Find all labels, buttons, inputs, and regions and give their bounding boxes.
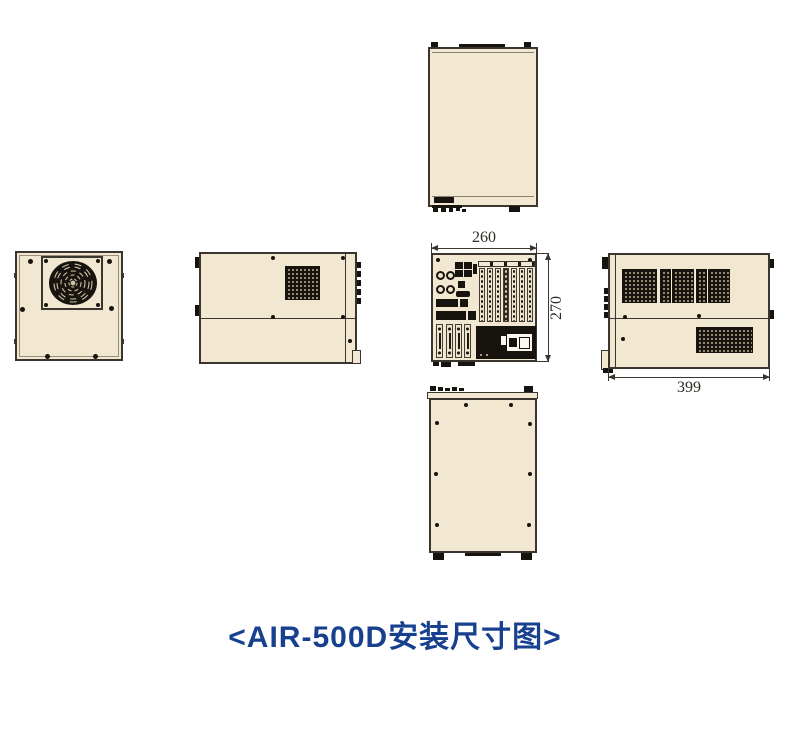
rear-bump xyxy=(357,280,361,286)
perforated-vent xyxy=(696,269,707,303)
fan-screw xyxy=(96,303,100,307)
edge-strip xyxy=(465,553,501,556)
bottom-panel xyxy=(429,398,537,553)
installation-dimension-diagram: 260 xyxy=(0,0,790,736)
screw-hole xyxy=(527,523,531,527)
screw-hole xyxy=(435,421,439,425)
slot-cover xyxy=(455,324,462,358)
flange-tick xyxy=(121,273,124,278)
rear-edge-line xyxy=(615,255,616,367)
expansion-slot-cover xyxy=(495,268,501,322)
dimension-arrow xyxy=(530,245,537,251)
screw-hole xyxy=(435,523,439,527)
dimension-depth-label: 399 xyxy=(659,380,719,398)
dsub-connector xyxy=(456,291,470,297)
left-side-view xyxy=(195,250,367,368)
expansion-slot-cover xyxy=(487,268,493,322)
panel-split-line xyxy=(610,318,768,319)
round-connector xyxy=(436,271,445,280)
rear-bump xyxy=(357,298,361,304)
io-port xyxy=(473,264,477,274)
usb-port-stack xyxy=(454,261,472,277)
screw-hole xyxy=(528,472,532,476)
connector-bump xyxy=(462,209,466,212)
dimension-width-label: 260 xyxy=(454,230,514,246)
expansion-slot-cover xyxy=(511,268,517,322)
screw-hole xyxy=(28,259,33,264)
chassis-foot xyxy=(521,553,532,560)
flange-tick xyxy=(14,339,17,344)
bottom-view xyxy=(425,383,545,565)
connector-bump xyxy=(449,208,453,212)
dimension-arrow xyxy=(763,374,770,380)
rear-bump xyxy=(357,271,361,277)
connector-bump xyxy=(441,208,446,212)
slot-cover xyxy=(436,324,443,358)
screw-hole xyxy=(341,315,345,319)
expansion-slot-cover xyxy=(527,268,533,322)
power-switch xyxy=(509,338,517,347)
connector-bump xyxy=(456,208,460,211)
slot-cover xyxy=(464,324,471,358)
screw-hole xyxy=(434,472,438,476)
left-side-panel xyxy=(199,252,357,364)
fan-mount-plate xyxy=(41,256,103,310)
chassis-foot xyxy=(441,362,451,367)
top-view xyxy=(425,42,545,217)
rear-bump xyxy=(770,310,774,319)
connector-bump xyxy=(433,208,438,212)
rear-bump xyxy=(357,289,361,295)
screw-hole xyxy=(93,354,98,359)
screw-hole xyxy=(271,256,275,260)
io-port xyxy=(460,299,468,307)
screw-hole xyxy=(109,306,114,311)
screw-hole xyxy=(348,339,352,343)
chassis-foot xyxy=(433,553,444,560)
right-side-panel xyxy=(608,253,770,369)
screw-hole xyxy=(107,259,112,264)
top-cover-panel xyxy=(428,47,538,207)
io-port xyxy=(458,281,465,288)
connector-bump xyxy=(445,388,450,391)
fan-side-view xyxy=(15,251,127,363)
card-cage-rail xyxy=(478,261,535,267)
rear-bump xyxy=(770,259,774,268)
io-port xyxy=(436,311,466,320)
chassis-foot xyxy=(352,350,361,364)
screw-hole xyxy=(20,307,25,312)
screw-hole xyxy=(271,315,275,319)
dimension-line xyxy=(608,377,770,378)
io-connector-cluster xyxy=(436,261,478,323)
slot-cover xyxy=(446,324,453,358)
expansion-slot-cover xyxy=(503,268,509,322)
screw-hole xyxy=(528,422,532,426)
chassis-foot xyxy=(458,362,475,366)
perforated-vent xyxy=(708,269,730,303)
panel-split-line xyxy=(201,318,355,319)
panel-seam-line xyxy=(432,52,534,53)
screw-hole xyxy=(697,314,701,318)
chassis-foot xyxy=(509,206,520,212)
connector-bump xyxy=(438,387,443,391)
perforated-vent xyxy=(285,266,320,300)
rear-bump xyxy=(357,262,361,268)
expansion-slot-cover xyxy=(479,268,485,322)
screw-hole xyxy=(464,403,468,407)
connector-bump xyxy=(459,388,464,391)
screw-hole xyxy=(341,256,345,260)
power-plug-opening xyxy=(519,337,530,349)
expansion-slot-cover xyxy=(519,268,525,322)
perforated-vent xyxy=(696,327,753,353)
connector-bump xyxy=(430,386,436,391)
power-inlet-socket xyxy=(506,333,533,352)
rear-view: 260 xyxy=(425,228,580,373)
dimension-line xyxy=(431,248,537,249)
psu-screw xyxy=(486,354,488,356)
chassis-foot xyxy=(433,362,439,366)
screw-hole xyxy=(621,337,625,341)
fan-screw xyxy=(44,303,48,307)
io-port xyxy=(468,311,476,320)
io-port xyxy=(436,299,458,307)
right-side-view: 399 xyxy=(598,250,788,400)
screw-hole xyxy=(509,403,513,407)
screw-hole xyxy=(623,315,627,319)
round-connector xyxy=(436,285,445,294)
psu-screw xyxy=(480,354,482,356)
fan-grille-icon xyxy=(47,260,99,306)
rear-edge-line xyxy=(345,254,346,362)
product-label xyxy=(434,197,454,203)
dimension-arrow xyxy=(545,253,551,260)
diagram-caption: <AIR-500D安装尺寸图> xyxy=(0,612,790,656)
dimension-arrow xyxy=(431,245,438,251)
dimension-arrow xyxy=(608,374,615,380)
flange-tick xyxy=(121,339,124,344)
dimension-height-label: 270 xyxy=(549,288,565,328)
round-connector xyxy=(446,285,455,294)
connector-bump xyxy=(452,387,457,391)
perforated-vent xyxy=(660,269,671,303)
perforated-vent xyxy=(672,269,694,303)
round-connector xyxy=(446,271,455,280)
screw-hole xyxy=(45,354,50,359)
fan-screw xyxy=(44,259,48,263)
fan-screw xyxy=(96,259,100,263)
flange-tick xyxy=(14,273,17,278)
rear-panel xyxy=(431,253,537,362)
psu-block xyxy=(476,326,536,359)
perforated-vent xyxy=(622,269,657,303)
dimension-arrow xyxy=(545,355,551,362)
